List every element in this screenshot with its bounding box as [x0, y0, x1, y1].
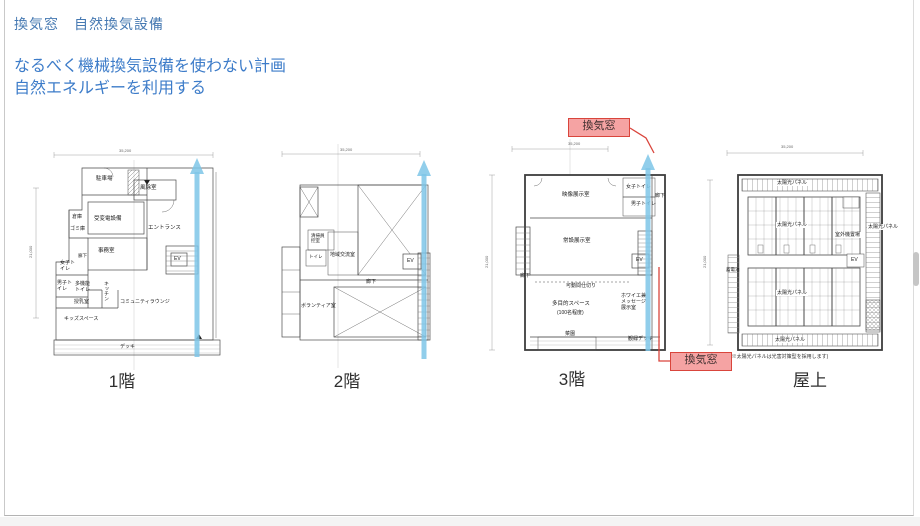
vent-window-callout-bottom: 換気窓	[670, 352, 732, 371]
room-label: コミュニティラウンジ	[120, 299, 170, 305]
room-label: ゴミ庫	[70, 226, 85, 232]
caption-roof: 屋上	[778, 366, 842, 391]
room-label: 廊下	[366, 279, 376, 285]
dimension-label: 21,000	[702, 256, 707, 268]
room-label: 太陽光パネル	[776, 180, 808, 186]
room-label: ボランティア室	[301, 303, 336, 309]
room-label: 可動間仕切り	[566, 283, 596, 289]
app-background	[0, 517, 920, 526]
room-label: (100名程度)	[557, 310, 584, 316]
room-label: 室外機置場	[834, 232, 861, 238]
dimension-label: 35,200	[119, 148, 131, 153]
room-label: 清掃員控室	[311, 233, 326, 244]
subtitle-line-2: 自然エネルギーを利用する	[14, 74, 206, 98]
floor-plan-roof-drawing	[700, 140, 918, 380]
slide-title: 換気窓 自然換気設備	[14, 14, 164, 34]
dimension-label: 35,200	[781, 144, 793, 149]
scrollbar-thumb[interactable]	[913, 252, 919, 286]
room-label: 男子トイレ	[631, 201, 656, 207]
floor-plan-3f: 映像展示室 女子トイレ 男子トイレ 廊下 常設展示室 EV 廊下 可動間仕切り …	[480, 105, 695, 373]
room-label: キッズスペース	[64, 316, 98, 322]
room-label: 地域交流室	[330, 252, 355, 258]
room-label: 太陽光パネル	[776, 222, 808, 228]
room-label: EV	[636, 257, 643, 263]
dimension-label: 35,200	[568, 141, 580, 146]
room-label: 風除室	[140, 185, 157, 192]
room-label: 廊下	[520, 273, 530, 279]
room-label: EV	[174, 256, 181, 262]
caption-2f: 2階	[315, 367, 379, 392]
floor-plan-1f: 駐車場 風除室 倉庫 ゴミ庫 受変電設備 エントランス 事務室 廊下 女子トイレ…	[14, 140, 230, 372]
room-label: 太陽光パネル	[774, 337, 806, 343]
floor-plan-2f-drawing	[270, 140, 460, 372]
room-label: 映像展示室	[562, 192, 590, 199]
room-label: 観緑デッキ	[628, 336, 653, 342]
vent-window-callout-top: 換気窓	[568, 118, 630, 137]
deck-marker-icon	[196, 334, 202, 339]
room-label: 女子トイレ	[60, 260, 76, 272]
floor-plan-roof: 太陽光パネル 太陽光パネル 室外機置場 太陽光パネル EV 蓄電池 太陽光パネル…	[700, 140, 918, 380]
caption-3f: 3階	[540, 365, 604, 390]
room-label: 常設展示室	[563, 238, 591, 245]
caption-1f: 1階	[90, 367, 154, 392]
room-label: 多機能トイレ	[75, 281, 92, 293]
room-label: 廊下	[78, 253, 87, 258]
solar-panel-note: (※太陽光パネルは光害対策型を採用します)	[730, 353, 828, 360]
room-label: デッキ	[120, 344, 135, 350]
floor-plan-2f: 清掃員控室 トイレ 地域交流室 廊下 ボランティア室 EV 35,200	[270, 140, 460, 372]
room-label: 事務室	[98, 248, 115, 255]
room-label: EV	[851, 257, 858, 263]
room-label: エントランス	[148, 225, 181, 232]
room-label: ホワイエ兼メッセージ展示室	[621, 293, 648, 311]
room-label: 廊下	[655, 193, 665, 199]
dimension-label: 21,000	[484, 256, 489, 268]
room-label: 男子トイレ	[57, 280, 73, 292]
room-label: 受変電設備	[94, 216, 122, 223]
room-label: 太陽光パネル	[776, 290, 808, 296]
room-label: 多目的スペース	[552, 301, 590, 308]
room-label: 授乳室	[74, 299, 89, 305]
room-label: 菜園	[565, 331, 575, 337]
room-label: 女子トイレ	[626, 184, 651, 190]
dimension-label: 35,200	[340, 147, 352, 152]
floor-plan-1f-drawing	[14, 140, 230, 372]
dimension-label: 21,000	[28, 246, 33, 258]
room-label: 太陽光パネル	[867, 224, 899, 230]
room-label: キッチン	[103, 281, 109, 307]
room-label: 駐車場	[96, 176, 113, 183]
room-label: EV	[407, 258, 414, 264]
room-label: トイレ	[309, 254, 323, 259]
subtitle-line-1: なるべく機械換気設備を使わない計画	[14, 52, 286, 76]
room-label: 倉庫	[72, 214, 82, 220]
room-label: 蓄電池	[726, 267, 740, 272]
